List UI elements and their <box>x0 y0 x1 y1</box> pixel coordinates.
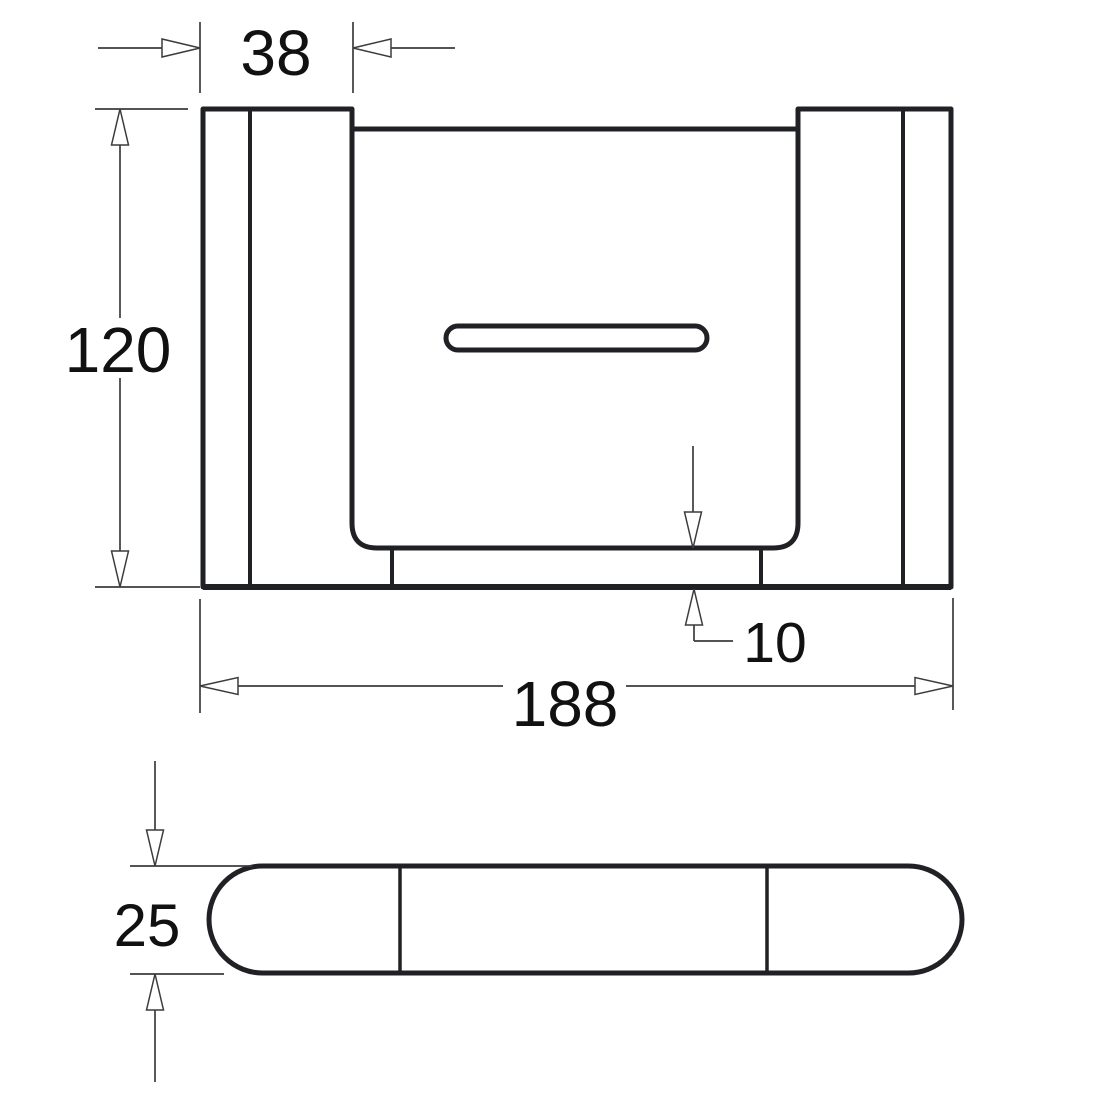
front-view <box>203 109 951 587</box>
arrowhead-down-icon <box>147 830 164 866</box>
dim-label-shelf-thickness: 10 <box>743 611 806 675</box>
dimension-depth: 25 <box>114 761 252 1082</box>
dimension-shelf-thickness: 10 <box>685 446 807 675</box>
dim-label-depth: 25 <box>114 892 181 959</box>
technical-drawing: 38 120 188 10 <box>0 0 1100 1100</box>
plan-view <box>209 866 962 973</box>
plan-outline <box>209 866 962 973</box>
drawing-canvas: 38 120 188 10 <box>0 0 1100 1100</box>
arrowhead-up-icon <box>147 974 164 1010</box>
dim-label-overall-width: 188 <box>512 668 619 740</box>
dim-label-bracket-width: 38 <box>240 17 311 89</box>
arrowhead-left-icon <box>200 678 238 695</box>
dimension-bracket-width: 38 <box>98 17 455 93</box>
arrowhead-down-icon <box>112 551 129 587</box>
arrowhead-right-icon <box>915 678 953 695</box>
dimension-height: 120 <box>65 109 200 587</box>
arrowhead-left-icon <box>353 39 391 57</box>
arrowhead-down-icon <box>685 512 702 548</box>
drain-slot <box>446 326 707 350</box>
arrowhead-right-icon <box>162 39 200 57</box>
dim-label-height: 120 <box>65 314 172 386</box>
arrowhead-up-icon <box>686 589 703 625</box>
arrowhead-up-icon <box>112 109 129 145</box>
dimension-overall-width: 188 <box>200 598 953 740</box>
